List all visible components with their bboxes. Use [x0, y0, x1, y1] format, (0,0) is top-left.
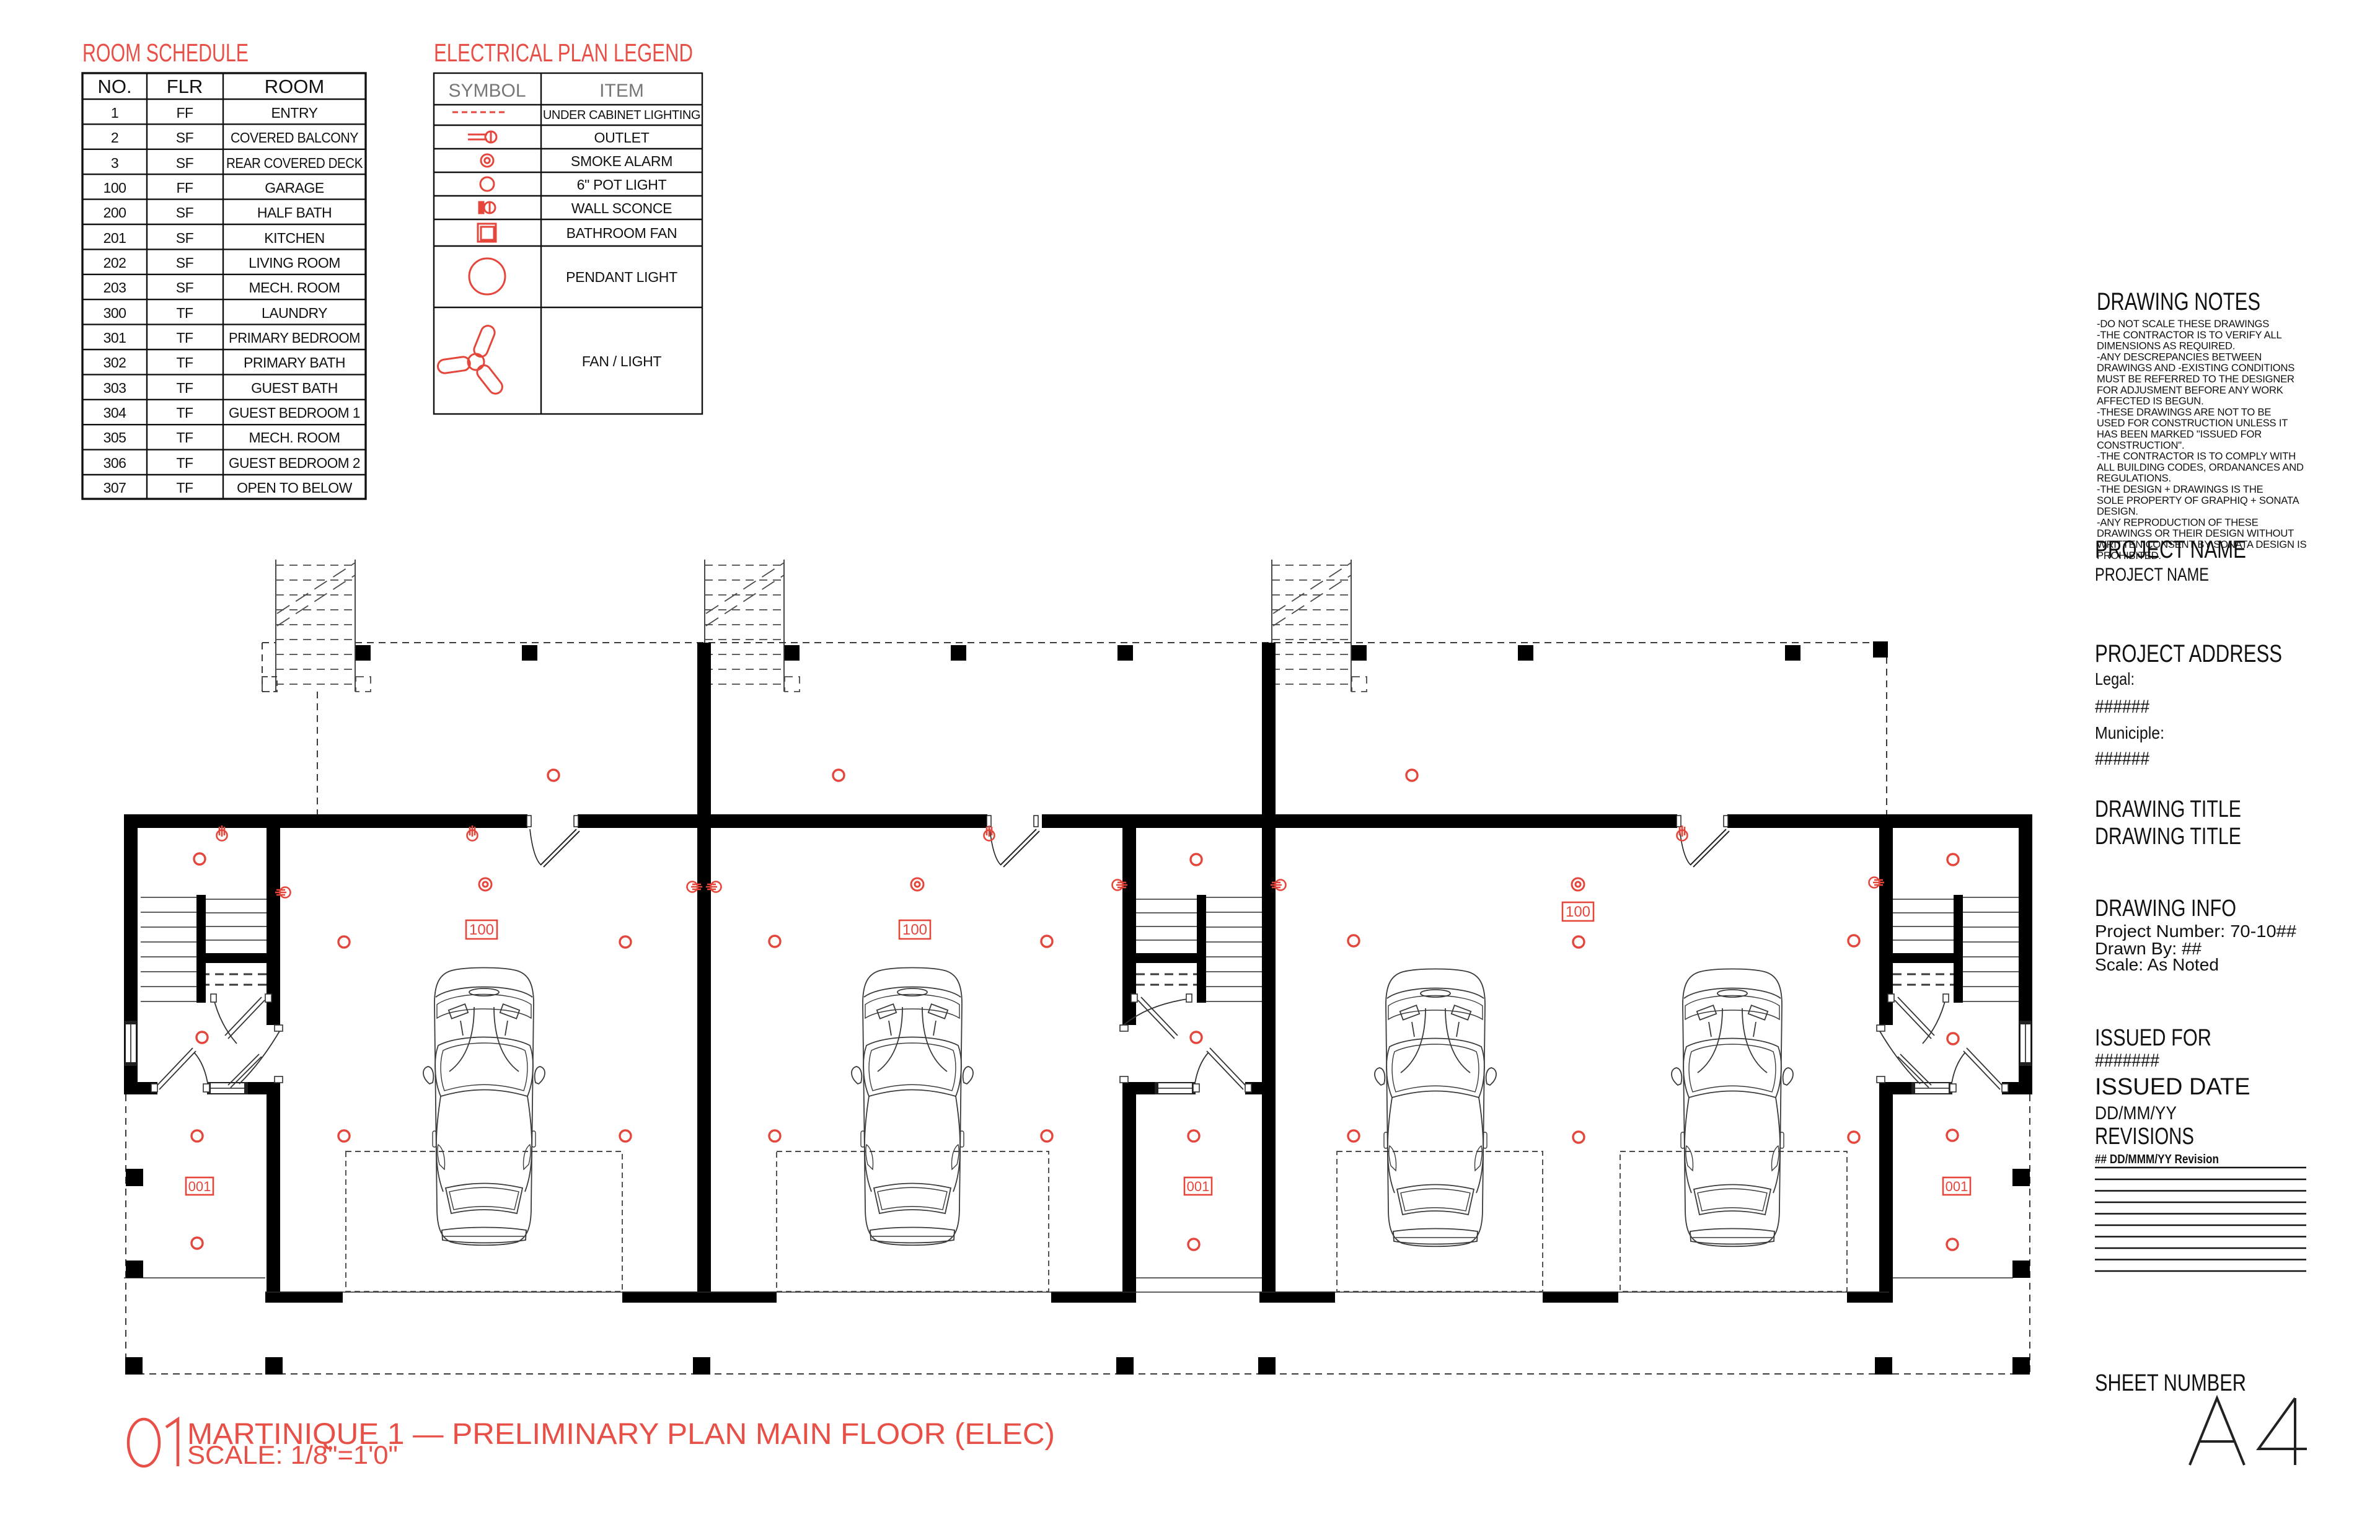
- svg-text:TF: TF: [176, 380, 193, 396]
- svg-text:GUEST BEDROOM 1: GUEST BEDROOM 1: [229, 405, 360, 421]
- svg-text:MECH. ROOM: MECH. ROOM: [249, 279, 340, 296]
- svg-text:Project Number: 70-10##: Project Number: 70-10##: [2095, 922, 2296, 941]
- svg-text:TF: TF: [176, 405, 193, 421]
- svg-text:REGULATIONS.: REGULATIONS.: [2097, 472, 2171, 484]
- svg-text:AFFECTED IS BEGUN.: AFFECTED IS BEGUN.: [2097, 395, 2204, 407]
- svg-text:TF: TF: [176, 354, 193, 371]
- svg-text:ITEM: ITEM: [599, 81, 644, 101]
- svg-text:306: 306: [104, 455, 126, 471]
- svg-text:301: 301: [104, 330, 126, 346]
- svg-text:-ANY DESCREPANCIES BETWEEN: -ANY DESCREPANCIES BETWEEN: [2097, 351, 2262, 363]
- svg-text:FOR ADJUSMENT BEFORE ANY WORK: FOR ADJUSMENT BEFORE ANY WORK: [2097, 384, 2283, 396]
- svg-text:001: 001: [1187, 1179, 1210, 1194]
- svg-text:SF: SF: [176, 230, 194, 246]
- svg-text:-DO NOT SCALE THESE DRAWINGS: -DO NOT SCALE THESE DRAWINGS: [2097, 318, 2269, 330]
- svg-text:SCALE: 1/8"=1'0": SCALE: 1/8"=1'0": [187, 1440, 398, 1469]
- svg-text:DRAWING TITLE: DRAWING TITLE: [2095, 796, 2241, 822]
- svg-text:OUTLET: OUTLET: [594, 130, 650, 146]
- svg-text:USED FOR CONSTRUCTION UNLESS I: USED FOR CONSTRUCTION UNLESS IT: [2097, 417, 2288, 429]
- svg-text:DRAWING TITLE: DRAWING TITLE: [2095, 824, 2241, 850]
- svg-text:DRAWINGS AND -EXISTING CONDITI: DRAWINGS AND -EXISTING CONDITIONS: [2097, 362, 2294, 374]
- svg-text:DESIGN.: DESIGN.: [2097, 506, 2138, 517]
- svg-text:PRIMARY BATH: PRIMARY BATH: [244, 354, 345, 371]
- svg-text:######: ######: [2095, 749, 2149, 769]
- svg-text:ISSUED DATE: ISSUED DATE: [2095, 1074, 2250, 1100]
- svg-text:ROOM: ROOM: [265, 76, 324, 97]
- svg-text:REVISIONS: REVISIONS: [2095, 1124, 2194, 1150]
- svg-text:LAUNDRY: LAUNDRY: [262, 305, 327, 321]
- svg-text:PROJECT NAME: PROJECT NAME: [2095, 565, 2209, 585]
- svg-text:ELECTRICAL PLAN LEGEND: ELECTRICAL PLAN LEGEND: [434, 38, 693, 67]
- svg-text:FF: FF: [176, 105, 193, 121]
- svg-text:-THE DESIGN + DRAWINGS IS THE: -THE DESIGN + DRAWINGS IS THE: [2097, 483, 2263, 495]
- svg-text:NO.: NO.: [97, 76, 131, 97]
- svg-text:1: 1: [111, 105, 118, 121]
- svg-text:TF: TF: [176, 330, 193, 346]
- svg-text:Scale: As Noted: Scale: As Noted: [2095, 955, 2219, 974]
- svg-text:SHEET NUMBER: SHEET NUMBER: [2095, 1370, 2246, 1396]
- svg-text:TF: TF: [176, 455, 193, 471]
- svg-text:307: 307: [104, 480, 126, 496]
- svg-text:100: 100: [104, 180, 126, 196]
- svg-text:TF: TF: [176, 480, 193, 496]
- svg-text:BATHROOM FAN: BATHROOM FAN: [566, 225, 677, 241]
- svg-text:ENTRY: ENTRY: [271, 105, 317, 121]
- svg-text:ALL BUILDING CODES, ORDANANCES: ALL BUILDING CODES, ORDANANCES AND: [2097, 461, 2304, 473]
- svg-text:001: 001: [1946, 1179, 1968, 1194]
- svg-text:Municiple:: Municiple:: [2095, 723, 2164, 742]
- svg-text:203: 203: [104, 279, 126, 296]
- svg-text:6" POT LIGHT: 6" POT LIGHT: [577, 177, 667, 193]
- svg-text:201: 201: [104, 230, 126, 246]
- svg-text:MUST BE REFERRED TO THE DESIGN: MUST BE REFERRED TO THE DESIGNER: [2097, 373, 2294, 385]
- svg-text:DIMENSIONS AS REQUIRED.: DIMENSIONS AS REQUIRED.: [2097, 340, 2235, 352]
- svg-text:-THESE DRAWINGS ARE NOT TO BE: -THESE DRAWINGS ARE NOT TO BE: [2097, 406, 2271, 418]
- svg-text:OPEN TO BELOW: OPEN TO BELOW: [237, 480, 352, 496]
- svg-text:305: 305: [104, 429, 126, 446]
- svg-text:DRAWING NOTES: DRAWING NOTES: [2097, 288, 2260, 315]
- svg-text:202: 202: [104, 255, 126, 271]
- svg-text:300: 300: [104, 305, 126, 321]
- svg-text:100: 100: [1566, 904, 1590, 920]
- svg-text:-THE CONTRACTOR IS TO COMPLY W: -THE CONTRACTOR IS TO COMPLY WITH: [2097, 451, 2296, 462]
- svg-text:TF: TF: [176, 429, 193, 446]
- svg-text:DD/MM/YY: DD/MM/YY: [2095, 1103, 2177, 1124]
- svg-text:SMOKE ALARM: SMOKE ALARM: [571, 153, 672, 169]
- svg-text:200: 200: [104, 205, 126, 221]
- svg-text:-THE CONTRACTOR IS TO VERIFY A: -THE CONTRACTOR IS TO VERIFY ALL: [2097, 329, 2282, 341]
- svg-text:KITCHEN: KITCHEN: [264, 230, 324, 246]
- svg-text:3: 3: [111, 155, 118, 171]
- svg-text:PRIMARY BEDROOM: PRIMARY BEDROOM: [229, 330, 360, 346]
- svg-text:CONSTRUCTION".: CONSTRUCTION".: [2097, 439, 2184, 451]
- svg-text:MECH. ROOM: MECH. ROOM: [249, 429, 340, 446]
- svg-text:DRAWING INFO: DRAWING INFO: [2095, 895, 2236, 922]
- svg-text:WALL SCONCE: WALL SCONCE: [571, 200, 672, 216]
- svg-text:302: 302: [104, 354, 126, 371]
- svg-text:001: 001: [188, 1179, 211, 1194]
- svg-text:PROJECT ADDRESS: PROJECT ADDRESS: [2095, 640, 2282, 667]
- svg-text:ROOM SCHEDULE: ROOM SCHEDULE: [82, 38, 249, 67]
- svg-text:## DD/MMM/YY Revision: ## DD/MMM/YY Revision: [2095, 1153, 2219, 1166]
- svg-text:COVERED BALCONY: COVERED BALCONY: [231, 130, 358, 146]
- svg-text:PROJECT NAME: PROJECT NAME: [2095, 536, 2246, 563]
- svg-text:HAS BEEN MARKED "ISSUED FOR: HAS BEEN MARKED "ISSUED FOR: [2097, 428, 2262, 440]
- svg-text:FAN / LIGHT: FAN / LIGHT: [582, 353, 662, 369]
- svg-text:TF: TF: [176, 305, 193, 321]
- svg-text:SF: SF: [176, 205, 194, 221]
- svg-text:ISSUED FOR: ISSUED FOR: [2095, 1025, 2211, 1051]
- svg-text:FF: FF: [176, 180, 193, 196]
- svg-text:LIVING ROOM: LIVING ROOM: [249, 255, 340, 271]
- svg-text:2: 2: [111, 130, 118, 146]
- svg-text:GARAGE: GARAGE: [265, 180, 324, 196]
- svg-text:304: 304: [104, 405, 127, 421]
- svg-text:SF: SF: [176, 279, 194, 296]
- svg-text:SF: SF: [176, 130, 194, 146]
- svg-text:GUEST BEDROOM 2: GUEST BEDROOM 2: [229, 455, 360, 471]
- svg-text:UNDER CABINET LIGHTING: UNDER CABINET LIGHTING: [543, 108, 700, 122]
- svg-text:REAR COVERED DECK: REAR COVERED DECK: [226, 155, 363, 171]
- svg-text:SYMBOL: SYMBOL: [448, 81, 526, 101]
- svg-text:HALF BATH: HALF BATH: [257, 205, 332, 221]
- svg-text:Legal:: Legal:: [2095, 669, 2135, 689]
- svg-text:100: 100: [469, 922, 494, 938]
- svg-text:303: 303: [104, 380, 126, 396]
- svg-text:SOLE PROPERTY OF GRAPHIQ + SON: SOLE PROPERTY OF GRAPHIQ + SONATA: [2097, 495, 2300, 506]
- svg-text:######: ######: [2095, 697, 2149, 717]
- svg-text:#######: #######: [2095, 1050, 2159, 1071]
- svg-text:SF: SF: [176, 255, 194, 271]
- svg-text:-ANY REPRODUCTION OF THESE: -ANY REPRODUCTION OF THESE: [2097, 516, 2259, 528]
- svg-text:SF: SF: [176, 155, 194, 171]
- svg-text:PENDANT LIGHT: PENDANT LIGHT: [566, 269, 677, 285]
- svg-text:FLR: FLR: [167, 76, 203, 97]
- svg-text:100: 100: [902, 922, 927, 938]
- svg-text:GUEST BATH: GUEST BATH: [251, 380, 338, 396]
